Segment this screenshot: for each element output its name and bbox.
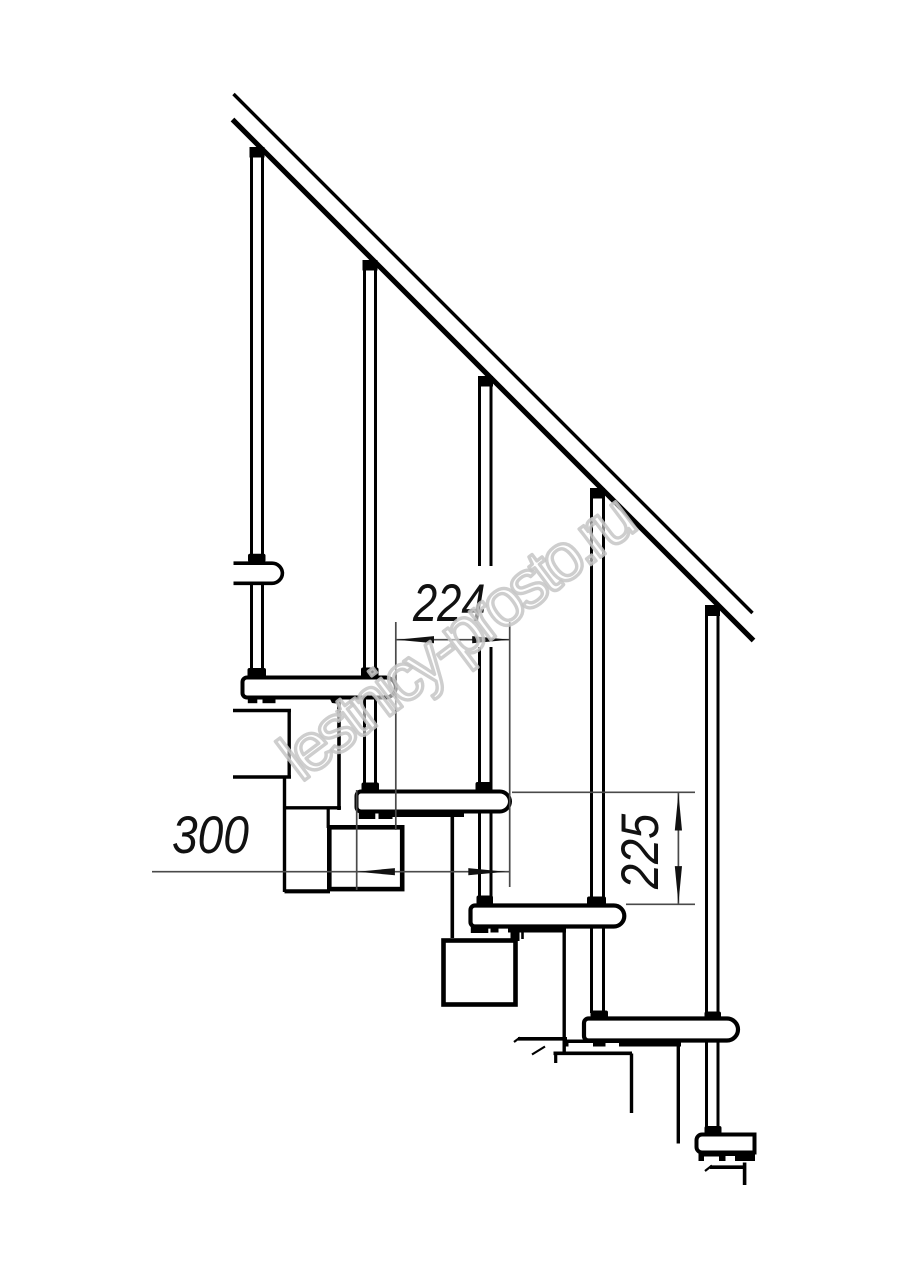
svg-text:300: 300 xyxy=(172,806,249,865)
svg-text:225: 225 xyxy=(611,813,670,889)
